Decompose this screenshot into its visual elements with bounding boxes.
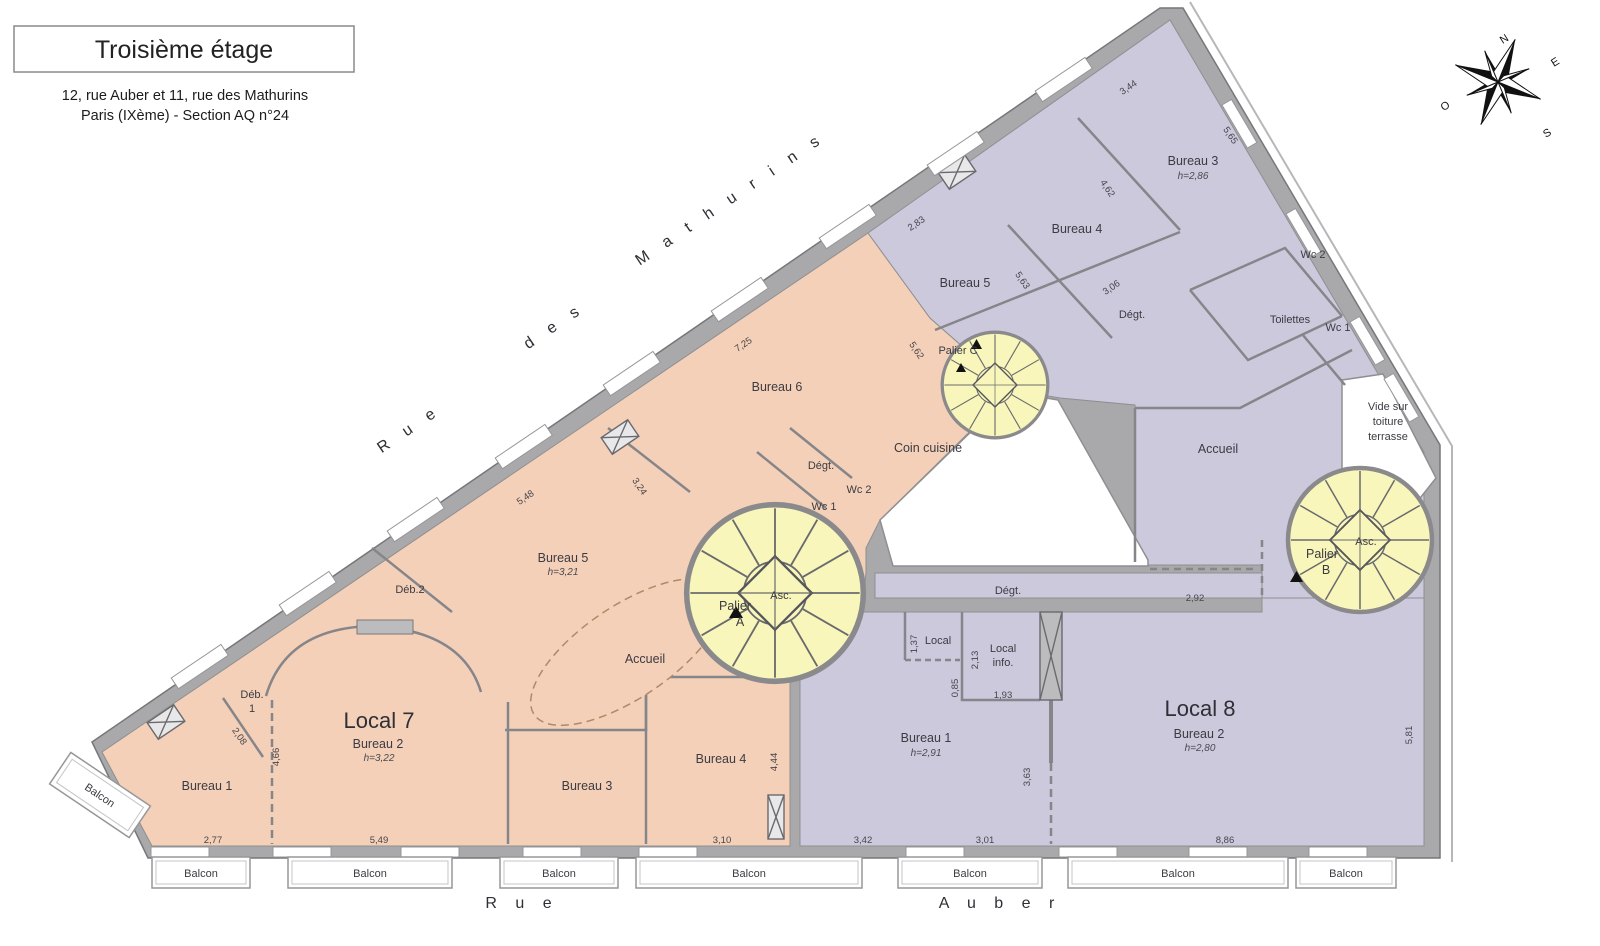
room-label-l7-bureau3: Bureau 3 bbox=[562, 779, 613, 793]
floor-plan-drawing: Balcon Balcon Balcon Balcon Balcon Balco… bbox=[0, 0, 1600, 946]
label-palier-b-letter: B bbox=[1322, 563, 1330, 577]
street-auber: A u b e r bbox=[939, 895, 1062, 912]
room-label-l8-bureau1: Bureau 1 bbox=[901, 731, 952, 745]
room-height-l7-bureau5: h=3,21 bbox=[548, 567, 579, 578]
dim-3-10: 3,10 bbox=[713, 835, 732, 846]
room-label-l8-wc2: Wc 2 bbox=[1300, 249, 1325, 261]
page-title: Troisième étage bbox=[95, 36, 273, 64]
floor-plan-page: Balcon Balcon Balcon Balcon Balcon Balco… bbox=[0, 0, 1600, 946]
room-height-l8-bureau3: h=2,86 bbox=[1178, 171, 1209, 182]
label-vide-2: toiture bbox=[1373, 416, 1404, 428]
zone-local8-lower bbox=[800, 598, 1424, 846]
room-label-l7-deb1-num: 1 bbox=[249, 703, 255, 715]
label-asc-b: Asc. bbox=[1355, 536, 1376, 548]
dim-4-66: 4,66 bbox=[271, 748, 282, 767]
compass-n: N bbox=[1498, 32, 1511, 46]
dim-5-81: 5,81 bbox=[1404, 726, 1415, 745]
room-label-l7-bureau5: Bureau 5 bbox=[538, 551, 589, 565]
dim-4-44: 4,44 bbox=[769, 753, 780, 772]
room-label-l7-deb2: Déb.2 bbox=[395, 584, 424, 596]
room-label-l7-wc1: Wc 1 bbox=[811, 501, 836, 513]
dim-3-63: 3,63 bbox=[1022, 768, 1033, 787]
street-rue-bottom: R u e bbox=[485, 895, 558, 912]
balconies-bottom: Balcon Balcon Balcon Balcon Balcon Balco… bbox=[152, 857, 1396, 888]
dim-8-86: 8,86 bbox=[1216, 835, 1235, 846]
dim-2-13: 2,13 bbox=[970, 651, 981, 670]
room-label-l8-bureau2: Bureau 2 bbox=[1174, 727, 1225, 741]
compass-s: S bbox=[1541, 126, 1554, 140]
balcony-label: Balcon bbox=[542, 868, 576, 880]
street-mathurins: M a t h u r i n s bbox=[633, 129, 829, 269]
balcony-label: Balcon bbox=[1329, 868, 1363, 880]
address-line1: 12, rue Auber et 11, rue des Mathurins bbox=[62, 88, 308, 104]
room-label-l8-local-info: Local bbox=[990, 643, 1016, 655]
compass-rose: N E S O bbox=[1438, 22, 1562, 142]
room-label-l7-bureau6: Bureau 6 bbox=[752, 380, 803, 394]
dim-2-92: 2,92 bbox=[1186, 593, 1205, 604]
room-label-l7-degt: Dégt. bbox=[808, 460, 834, 472]
label-asc-a: Asc. bbox=[770, 590, 791, 602]
room-label-l8-bureau5: Bureau 5 bbox=[940, 276, 991, 290]
room-label-l8-local: Local bbox=[925, 635, 951, 647]
street-des: d e s bbox=[521, 300, 588, 353]
room-label-l7-coin-cuisine: Coin cuisine bbox=[894, 441, 962, 455]
balcony-label: Balcon bbox=[184, 868, 218, 880]
room-label-l7-bureau2: Bureau 2 bbox=[353, 737, 404, 751]
room-label-l7-accueil: Accueil bbox=[625, 652, 665, 666]
compass-o: O bbox=[1439, 99, 1453, 114]
room-height-l7-bureau2: h=3,22 bbox=[364, 753, 395, 764]
street-rue-top: R u e bbox=[374, 402, 444, 457]
room-label-l7-wc2: Wc 2 bbox=[846, 484, 871, 496]
dim-0-85: 0,85 bbox=[950, 679, 961, 698]
room-height-l8-bureau1: h=2,91 bbox=[911, 748, 942, 759]
zone-title-local8: Local 8 bbox=[1165, 696, 1236, 721]
room-label-l7-deb1: Déb. bbox=[240, 689, 263, 701]
label-palier-a: Palier bbox=[719, 599, 751, 613]
address-line2: Paris (IXème) - Section AQ n°24 bbox=[81, 108, 289, 124]
room-label-l8-bureau3: Bureau 3 bbox=[1168, 154, 1219, 168]
balcony-label: Balcon bbox=[1161, 868, 1195, 880]
dim-2-77: 2,77 bbox=[204, 835, 223, 846]
room-label-l7-bureau4: Bureau 4 bbox=[696, 752, 747, 766]
zone-title-local7: Local 7 bbox=[344, 708, 415, 733]
dim-1-37: 1,37 bbox=[909, 635, 920, 654]
room-label-l8-local-info2: info. bbox=[993, 657, 1014, 669]
title-block: Troisième étage 12, rue Auber et 11, rue… bbox=[14, 26, 354, 124]
dim-5-49: 5,49 bbox=[370, 835, 389, 846]
room-label-l8-bureau4: Bureau 4 bbox=[1052, 222, 1103, 236]
label-vide-3: terrasse bbox=[1368, 431, 1408, 443]
label-palier-a-letter: A bbox=[736, 615, 745, 629]
balcony-label: Balcon bbox=[732, 868, 766, 880]
room-label-l8-accueil: Accueil bbox=[1198, 442, 1238, 456]
label-palier-b: Palier bbox=[1306, 547, 1338, 561]
label-vide-1: Vide sur bbox=[1368, 401, 1408, 413]
room-label-l8-toilettes: Toilettes bbox=[1270, 314, 1311, 326]
dim-3-42: 3,42 bbox=[854, 835, 873, 846]
dim-3-01: 3,01 bbox=[976, 835, 995, 846]
balcony-label: Balcon bbox=[353, 868, 387, 880]
compass-e: E bbox=[1549, 55, 1562, 69]
room-height-l8-bureau2: h=2,80 bbox=[1185, 743, 1216, 754]
room-label-l8-wc1: Wc 1 bbox=[1325, 322, 1350, 334]
balcony-label: Balcon bbox=[953, 868, 987, 880]
room-label-l7-bureau1: Bureau 1 bbox=[182, 779, 233, 793]
dim-1-93: 1,93 bbox=[994, 690, 1013, 701]
wall-niche bbox=[357, 620, 413, 634]
label-palier-c: Palier C bbox=[938, 345, 977, 357]
room-label-l8-degt-top: Dégt. bbox=[1119, 309, 1145, 321]
room-label-l8-degt-corridor: Dégt. bbox=[995, 585, 1021, 597]
